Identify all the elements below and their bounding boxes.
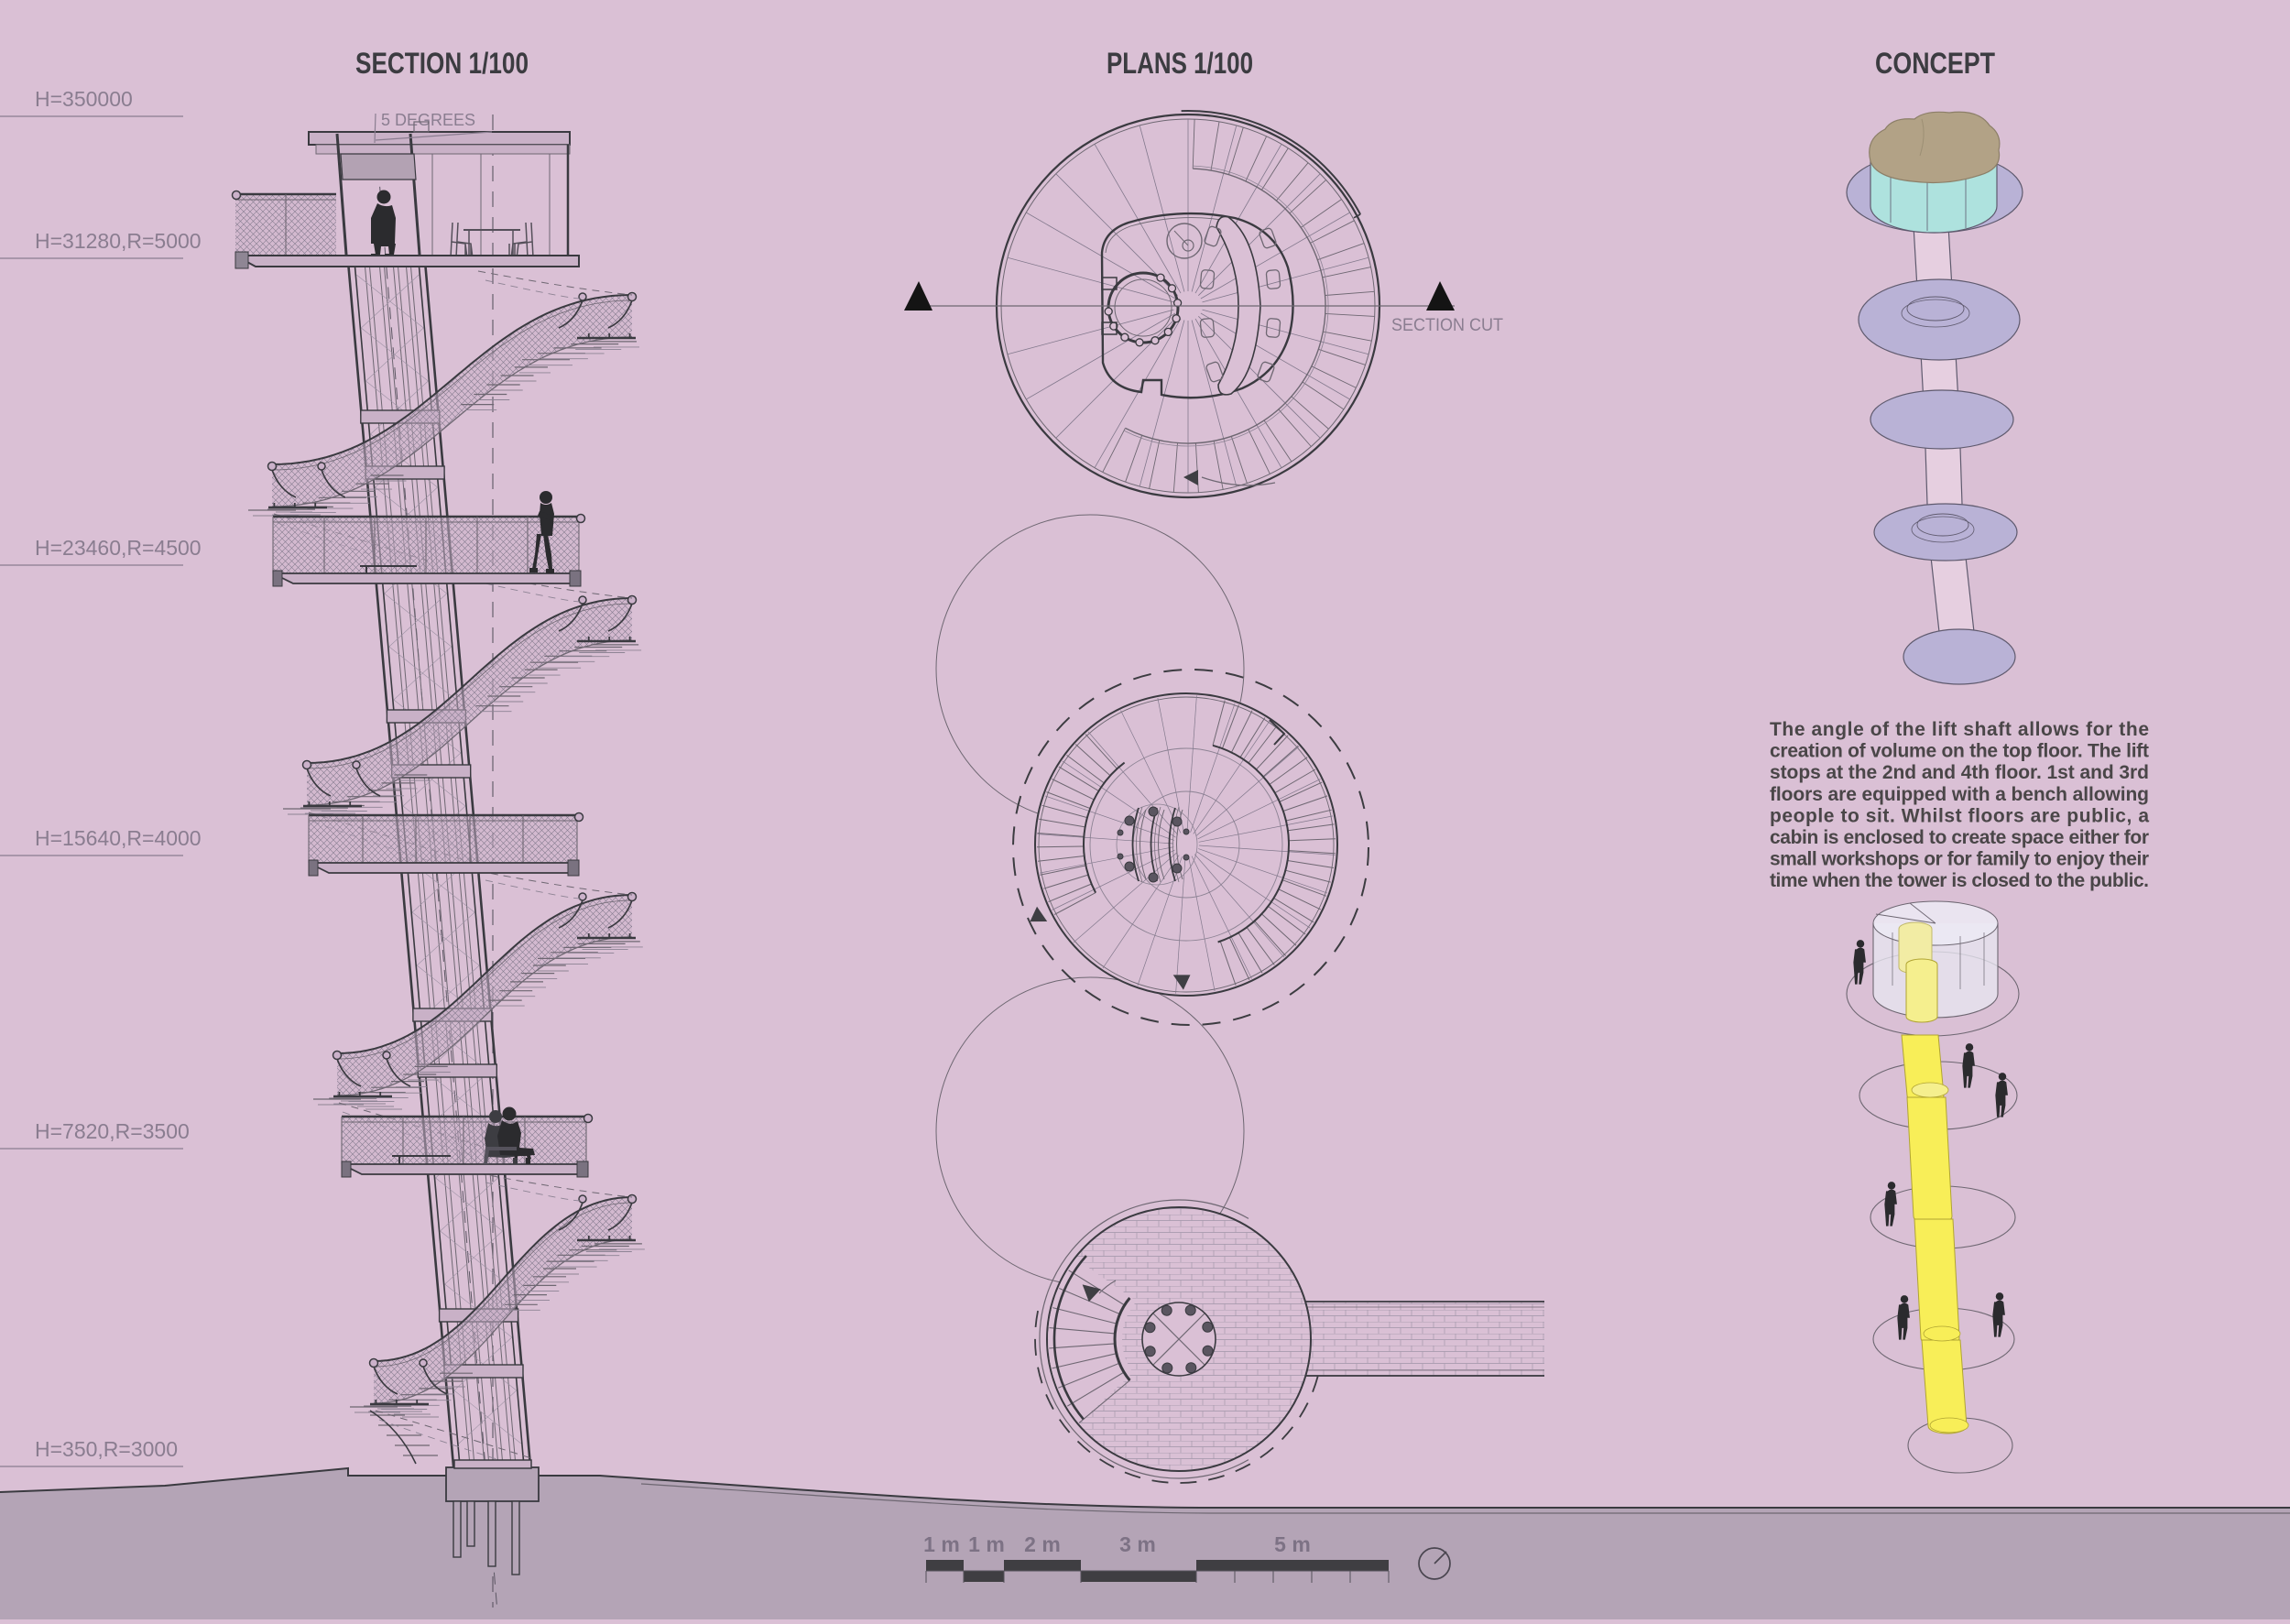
svg-text:2 m: 2 m <box>1024 1532 1061 1556</box>
svg-text:SECTION CUT: SECTION CUT <box>1391 316 1503 335</box>
svg-text:H=31280,R=5000: H=31280,R=5000 <box>35 229 202 253</box>
svg-text:stops at the 2nd and 4th floor: stops at the 2nd and 4th floor. 1st and … <box>1770 762 2149 783</box>
svg-text:5 m: 5 m <box>1274 1532 1311 1556</box>
svg-text:small workshops or for family: small workshops or for family to enjoy t… <box>1770 849 2149 870</box>
svg-text:time when the tower is closed: time when the tower is closed to the pub… <box>1770 870 2149 891</box>
svg-text:1 m: 1 m <box>968 1532 1005 1556</box>
svg-text:floors are equipped with a ben: floors are equipped with a bench allowin… <box>1770 784 2149 805</box>
svg-text:H=15640,R=4000: H=15640,R=4000 <box>35 826 202 850</box>
svg-text:CONCEPT: CONCEPT <box>1875 47 1995 80</box>
svg-text:H=7820,R=3500: H=7820,R=3500 <box>35 1119 190 1143</box>
svg-text:PLANS 1/100: PLANS 1/100 <box>1107 47 1253 80</box>
svg-text:H=23460,R=4500: H=23460,R=4500 <box>35 536 202 560</box>
svg-text:The angle of the lift shaft al: The angle of the lift shaft allows for t… <box>1770 719 2149 740</box>
svg-text:1 m: 1 m <box>923 1532 960 1556</box>
svg-text:SECTION 1/100: SECTION 1/100 <box>355 47 529 80</box>
svg-text:people to sit. Whilst floors a: people to sit. Whilst floors are public,… <box>1770 805 2149 826</box>
svg-text:H=350,R=3000: H=350,R=3000 <box>35 1437 178 1461</box>
svg-text:3 m: 3 m <box>1119 1532 1156 1556</box>
svg-text:cabin is enclosed to create sp: cabin is enclosed to create space either… <box>1770 827 2149 848</box>
svg-text:creation of volume on the top: creation of volume on the top floor. The… <box>1770 741 2149 762</box>
svg-text:H=350000: H=350000 <box>35 87 133 111</box>
